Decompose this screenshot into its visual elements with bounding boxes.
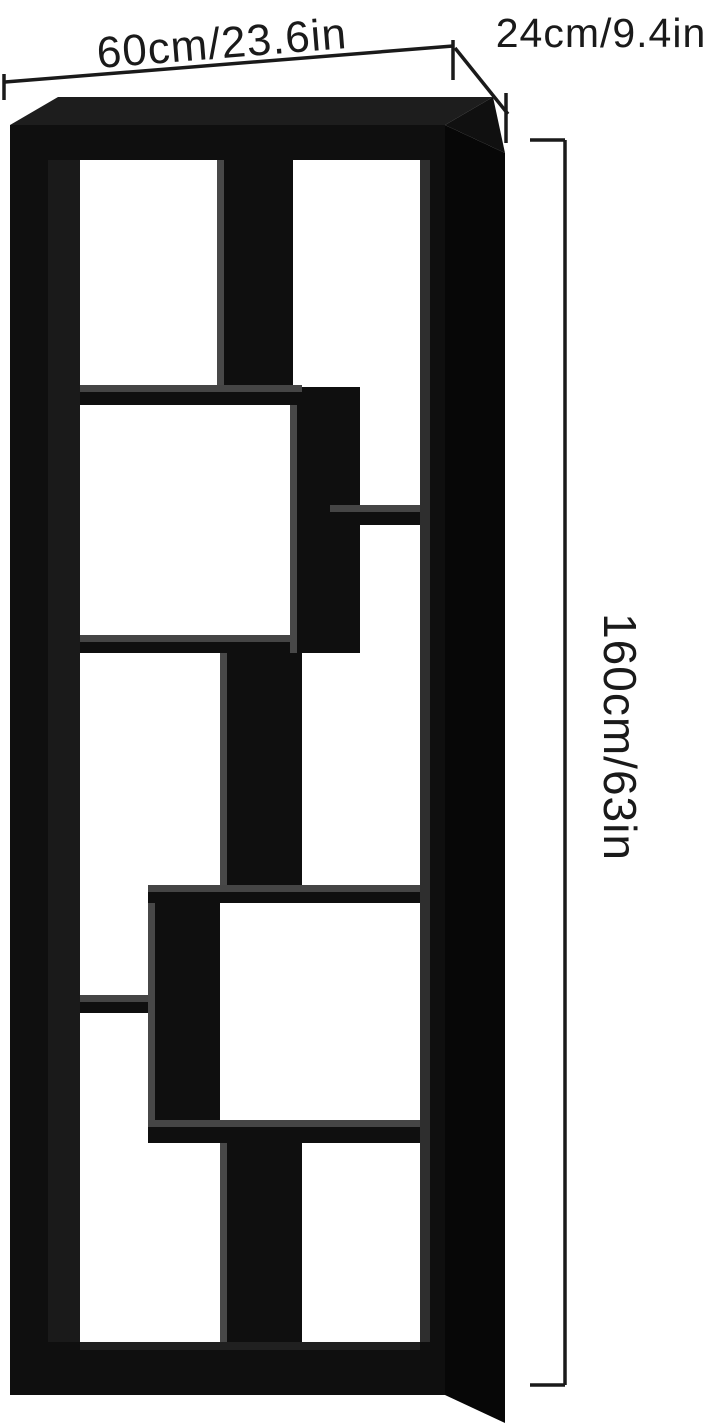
shelf1-top-surface — [80, 385, 302, 392]
shelf6-top-surface — [148, 1120, 420, 1127]
bookshelf-top-face — [10, 97, 493, 125]
right-wall-inner-face — [420, 160, 430, 1342]
bookshelf-diagram-canvas: 60cm/23.6in 24cm/9.4in 160cm/63in — [0, 0, 723, 1425]
divider-top-edge — [217, 160, 224, 385]
shelf4-top-surface — [148, 885, 420, 892]
divider-upper-mid-edge — [290, 405, 297, 653]
shelf2-top-surface — [330, 505, 420, 512]
shelf3-top-surface — [80, 635, 290, 642]
bookshelf-side-face — [445, 125, 505, 1423]
divider-mid-edge — [220, 653, 227, 885]
shelf5-top-surface — [80, 995, 148, 1002]
width-dimension-label: 60cm/23.6in — [95, 9, 349, 78]
left-wall-inner-face — [48, 160, 80, 1342]
compartment-top-left — [80, 160, 217, 385]
compartment-mid-left — [80, 405, 290, 635]
bottom-panel-top-surface — [80, 1342, 420, 1350]
divider-bottom-edge — [220, 1143, 227, 1342]
bookshelf-illustration — [10, 97, 505, 1423]
compartment-lower-right — [220, 903, 420, 1120]
compartment-bottom-right — [302, 1143, 420, 1342]
height-dimension — [530, 140, 565, 1385]
height-dimension-label: 160cm/63in — [594, 613, 646, 861]
depth-dimension-label: 24cm/9.4in — [496, 10, 707, 56]
divider-lower-mid-edge — [148, 903, 155, 1120]
product-dimension-diagram: 60cm/23.6in 24cm/9.4in 160cm/63in — [0, 0, 723, 1425]
